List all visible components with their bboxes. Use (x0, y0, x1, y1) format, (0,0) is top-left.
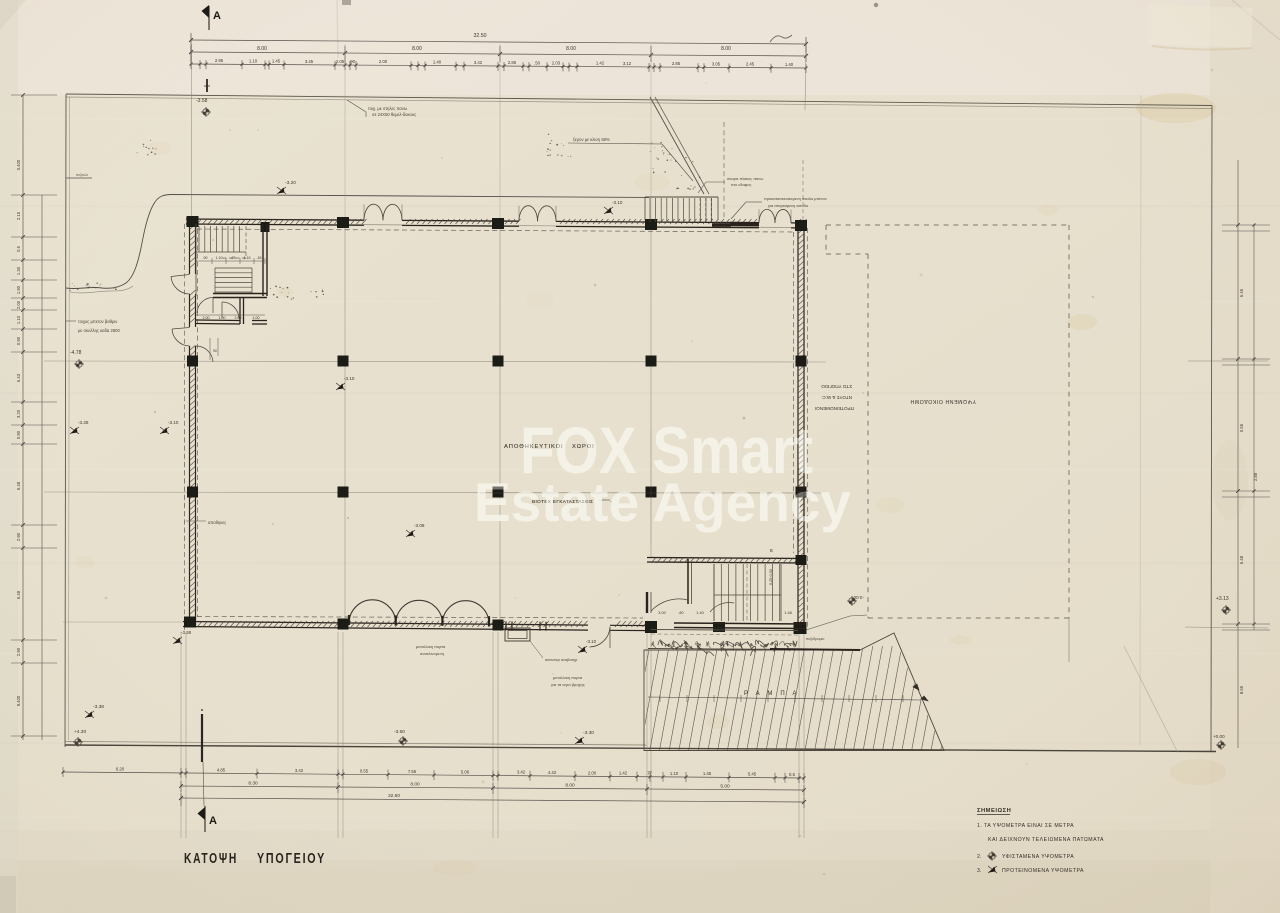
svg-text:ανακλινομενη: ανακλινομενη (420, 651, 444, 656)
svg-text:1.42: 1.42 (619, 771, 628, 776)
svg-text:0.90: 0.90 (16, 430, 21, 439)
svg-text:ΚΑΤΟΨΗ: ΚΑΤΟΨΗ (184, 851, 238, 867)
svg-text:1.10: 1.10 (16, 315, 21, 324)
svg-text:3.45: 3.45 (305, 59, 314, 64)
svg-text:7.55: 7.55 (408, 769, 417, 774)
svg-text:3.05: 3.05 (712, 61, 721, 66)
svg-text:τοιχος μπετον βαθμιν: τοιχος μπετον βαθμιν (78, 319, 117, 324)
svg-text:-3.10: -3.10 (168, 420, 179, 425)
svg-text:πεζοδρομιο: πεζοδρομιο (806, 637, 824, 641)
svg-text:9.400: 9.400 (16, 695, 21, 706)
svg-text:ΥΠΟΓΕΙΟΥ: ΥΠΟΓΕΙΟΥ (257, 851, 326, 867)
svg-text:ΠΡΟΤΕΙΝΟΜΕΝΑ ΥΨΟΜΕΤΡΑ: ΠΡΟΤΕΙΝΟΜΕΝΑ ΥΨΟΜΕΤΡΑ (1002, 868, 1084, 874)
svg-text:2.85: 2.85 (508, 60, 517, 65)
svg-text:2.85: 2.85 (672, 61, 681, 66)
svg-text:0.55: 0.55 (1239, 423, 1244, 432)
svg-text:μεταλλικη πορτα: μεταλλικη πορτα (553, 675, 583, 680)
svg-text:8.65: 8.65 (1239, 685, 1244, 694)
svg-text:3.42: 3.42 (295, 768, 304, 773)
svg-text:σε 24Χ50 θεμελ-δοκους: σε 24Χ50 θεμελ-δοκους (372, 112, 416, 117)
svg-text:ΥΦΙΣΤΑΜΕΝΑ ΥΨΟΜΕΤΡΑ: ΥΦΙΣΤΑΜΕΝΑ ΥΨΟΜΕΤΡΑ (1002, 854, 1074, 860)
svg-text:6.48: 6.48 (16, 590, 21, 599)
svg-text:προκατασκευασμενη σκαλα μπετον: προκατασκευασμενη σκαλα μπετον (764, 196, 827, 201)
svg-text:με σκυλλης καδα 2800: με σκυλλης καδα 2800 (78, 328, 120, 333)
svg-text:8.00: 8.00 (257, 46, 267, 52)
svg-text:αποθηκες: αποθηκες (208, 520, 226, 525)
svg-text:90: 90 (213, 349, 217, 353)
svg-text:0.5: 0.5 (16, 245, 21, 251)
svg-text:3.20: 3.20 (16, 409, 21, 418)
svg-text:-3.30: -3.30 (583, 730, 594, 736)
svg-text:-3.10: -3.10 (586, 639, 597, 644)
svg-text:στο εδαφος: στο εδαφος (731, 182, 751, 187)
svg-text:0.25 0.30: 0.25 0.30 (769, 569, 773, 585)
svg-text:1.90: 1.90 (16, 285, 21, 294)
svg-text:2.15: 2.15 (16, 211, 21, 220)
svg-text:6.20: 6.20 (116, 767, 125, 772)
svg-text:-3.60: -3.60 (394, 729, 405, 735)
svg-text:.45: .45 (257, 256, 262, 260)
svg-text:1.10: 1.10 (249, 58, 258, 63)
svg-text:1.40: 1.40 (433, 60, 442, 65)
svg-text:2.05: 2.05 (336, 59, 345, 64)
svg-text:8.00: 8.00 (412, 46, 422, 52)
svg-text:1.00: 1.00 (253, 316, 260, 320)
svg-text:B: B (770, 548, 773, 553)
svg-text:για τα νερα βροχης: για τα νερα βροχης (551, 682, 585, 687)
svg-text:0.5: 0.5 (789, 772, 796, 777)
svg-text:5.00: 5.00 (720, 784, 730, 790)
svg-text:3.12: 3.12 (623, 61, 632, 66)
svg-text:4.85: 4.85 (217, 767, 226, 772)
svg-text:ΠΡΟΤΕΙΝΟΜΕΝΟΙ: ΠΡΟΤΕΙΝΟΜΕΝΟΙ (815, 406, 854, 411)
svg-text:0.55: 0.55 (360, 768, 369, 773)
svg-text:2.45: 2.45 (746, 62, 755, 67)
svg-text:3.42: 3.42 (517, 770, 526, 775)
svg-text:1.00: 1.00 (219, 316, 226, 320)
svg-text:.90: .90 (349, 59, 356, 64)
svg-text:+4.30: +4.30 (74, 729, 86, 735)
svg-text:32.50: 32.50 (388, 793, 400, 799)
svg-text:.25: .25 (231, 256, 236, 260)
svg-text:ασανσερ αναβατηρ: ασανσερ αναβατηρ (545, 658, 578, 662)
svg-text:τοιχ. με στηλες πανω: τοιχ. με στηλες πανω (368, 106, 408, 111)
svg-text:+3.13: +3.13 (1216, 596, 1229, 602)
svg-text:σκυρα πλακες πανω: σκυρα πλακες πανω (727, 176, 763, 181)
svg-text:Ρ Α Μ Π Α: Ρ Α Μ Π Α (744, 691, 800, 697)
svg-text:1.10: 1.10 (216, 256, 223, 260)
svg-text:2.00: 2.00 (235, 316, 242, 320)
svg-text:.80: .80 (678, 611, 683, 615)
svg-text:2.00: 2.00 (379, 59, 388, 64)
svg-text:4.42: 4.42 (548, 770, 557, 775)
svg-text:1. ΤΑ ΥΨΟΜΕΤΡΑ ΕΙΝΑΙ ΣΕ Μ: 1. ΤΑ ΥΨΟΜΕΤΡΑ ΕΙΝΑΙ ΣΕ ΜΕΤΡΑ (977, 823, 1074, 829)
svg-text:3.: 3. (977, 868, 981, 874)
svg-text:2.03: 2.03 (552, 60, 561, 65)
svg-text:-3.08: -3.08 (414, 523, 425, 528)
svg-text:1.30: 1.30 (16, 266, 21, 275)
svg-text:-3.38: -3.38 (181, 630, 192, 635)
svg-text:.90: .90 (203, 256, 208, 260)
svg-text:ΑΠΟΘΗΚΕΥΤΙΚΟΙ: ΑΠΟΘΗΚΕΥΤΙΚΟΙ (504, 444, 564, 450)
svg-text:-3.20: -3.20 (285, 180, 296, 186)
svg-text:ΥΨΩΜΕΝΗ ΟΙΚΟΔΟΜΗ: ΥΨΩΜΕΝΗ ΟΙΚΟΔΟΜΗ (910, 398, 976, 404)
svg-text:2.95: 2.95 (215, 58, 224, 63)
svg-text:1.42: 1.42 (596, 61, 605, 66)
svg-text:1.48: 1.48 (784, 611, 791, 615)
svg-text:8.00: 8.00 (410, 782, 420, 788)
svg-text:6.48: 6.48 (1239, 555, 1244, 564)
svg-text:0.90: 0.90 (16, 336, 21, 345)
svg-text:6.43: 6.43 (16, 373, 21, 382)
svg-text:2.00: 2.00 (203, 316, 210, 320)
svg-text:1.15: 1.15 (244, 256, 251, 260)
svg-text:.77: .77 (646, 771, 653, 776)
svg-text:2.: 2. (977, 854, 981, 860)
svg-text:8.00: 8.00 (721, 46, 731, 52)
svg-text:2.90: 2.90 (16, 532, 21, 541)
svg-text:ΒΙΟΤΕΧ ΕΓΚΑΤΑΣΤΑΣΕΙΣ: ΒΙΟΤΕΧ ΕΓΚΑΤΑΣΤΑΣΕΙΣ (532, 499, 593, 504)
svg-text:6.45: 6.45 (1239, 288, 1244, 297)
svg-text:1.40: 1.40 (785, 62, 794, 67)
svg-text:6.48: 6.48 (16, 481, 21, 490)
svg-text:3.00: 3.00 (658, 611, 665, 615)
svg-text:1.40: 1.40 (696, 611, 703, 615)
svg-text:ΣΤΟ ΥΠΟΓΕΙΟ: ΣΤΟ ΥΠΟΓΕΙΟ (821, 384, 852, 389)
svg-text:8.00: 8.00 (566, 46, 576, 52)
svg-text:32.50: 32.50 (474, 33, 487, 39)
svg-text:ΝΤΟΥΣ & W.C.: ΝΤΟΥΣ & W.C. (821, 395, 852, 400)
svg-text:-4.78: -4.78 (70, 350, 82, 356)
svg-text:8.30: 8.30 (248, 781, 258, 787)
svg-text:A: A (213, 10, 221, 22)
svg-text:2.90: 2.90 (16, 647, 21, 656)
svg-text:.50: .50 (534, 60, 541, 65)
svg-text:5.45: 5.45 (748, 772, 757, 777)
svg-text:0.400: 0.400 (16, 159, 21, 170)
svg-text:-3.28: -3.28 (78, 420, 89, 425)
svg-text:1.45: 1.45 (272, 59, 281, 64)
svg-text:+0.00: +0.00 (1213, 734, 1225, 739)
svg-text:πεζουλι: πεζουλι (76, 173, 88, 177)
svg-text:Estate Agency: Estate Agency (474, 471, 851, 533)
svg-text:ΚΑΙ ΔΕΙΧΝΟΥΝ ΤΕΛΕΙΩΜΕΝΑ ΠΑΤ: ΚΑΙ ΔΕΙΧΝΟΥΝ ΤΕΛΕΙΩΜΕΝΑ ΠΑΤΩΜΑΤΑ (988, 837, 1104, 843)
svg-text:-3.38: -3.38 (93, 704, 104, 710)
svg-text:A: A (209, 815, 217, 827)
svg-text:μεταλλικη πορτα: μεταλλικη πορτα (416, 644, 446, 649)
svg-text:1.45: 1.45 (703, 771, 712, 776)
svg-text:-3.10: -3.10 (344, 376, 355, 381)
svg-text:3.42: 3.42 (474, 60, 483, 65)
svg-text:2.88: 2.88 (1253, 472, 1258, 481)
svg-text:2.00: 2.00 (16, 300, 21, 309)
svg-text:ΧΩΡΟΙ: ΧΩΡΟΙ (572, 444, 595, 450)
svg-text:5.06: 5.06 (461, 769, 470, 774)
svg-text:2.00: 2.00 (588, 770, 597, 775)
svg-text:8.00: 8.00 (565, 783, 575, 789)
svg-text:ΣΗΜΕΙΩΣΗ: ΣΗΜΕΙΩΣΗ (977, 808, 1011, 814)
svg-text:ξερον με κλιση 58%: ξερον με κλιση 58% (573, 137, 610, 142)
svg-text:-3.10: -3.10 (612, 200, 623, 205)
svg-text:1.10: 1.10 (670, 771, 679, 776)
svg-text:-3.58: -3.58 (196, 98, 208, 104)
